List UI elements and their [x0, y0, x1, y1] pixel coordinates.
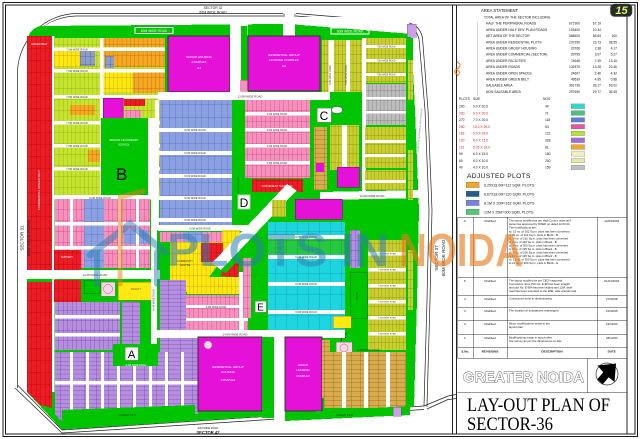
svg-text:9.0M WIDE ROAD: 9.0M WIDE ROAD	[295, 282, 317, 286]
svg-text:112: 112	[459, 145, 464, 149]
svg-text:162: 162	[459, 132, 465, 136]
svg-text:60M WIDE ROAD: 60M WIDE ROAD	[199, 11, 227, 15]
svg-text:PLOTS IN: PLOTS IN	[167, 224, 389, 276]
svg-text:5.27: 5.27	[611, 53, 618, 57]
svg-text:9.0M WIDE ROAD: 9.0M WIDE ROAD	[295, 310, 317, 314]
svg-text:NOS: NOS	[543, 97, 551, 101]
svg-text:9.0M WIDE ROAD: 9.0M WIDE ROAD	[184, 128, 206, 132]
svg-text:200: 200	[545, 159, 551, 163]
svg-text:24/12/94: 24/12/94	[606, 322, 618, 326]
svg-text:7.5M WIDE ROAD: 7.5M WIDE ROAD	[378, 301, 397, 304]
svg-text:DATE: DATE	[608, 350, 616, 354]
svg-text:60M WIDE ROAD: 60M WIDE ROAD	[141, 29, 168, 33]
svg-text:REVISIONS: REVISIONS	[482, 350, 499, 354]
svg-text:13.16: 13.16	[609, 59, 617, 63]
svg-text:10.0 X 25.0: 10.0 X 25.0	[473, 125, 490, 129]
svg-text:22.46: 22.46	[609, 65, 617, 69]
svg-text:40: 40	[545, 105, 549, 109]
svg-text:12M X 25M=300 SQM. PLOTS: 12M X 25M=300 SQM. PLOTS	[484, 211, 534, 215]
svg-text:Modified: Modified	[484, 297, 496, 301]
svg-text:38.55: 38.55	[609, 40, 617, 44]
svg-text:GREEN BELT: GREEN BELT	[336, 413, 354, 417]
svg-text:103400: 103400	[569, 28, 580, 32]
svg-text:AREA UNDER ROADS: AREA UNDER ROADS	[486, 65, 521, 69]
svg-text:SECTOR 31: SECTOR 31	[20, 225, 25, 251]
svg-text:DESCRIPTION: DESCRIPTION	[541, 350, 563, 354]
svg-text:9.0M WIDE ROAD: 9.0M WIDE ROAD	[267, 113, 288, 116]
svg-text:AREA UNDER FACILITIES: AREA UNDER FACILITIES	[486, 59, 527, 63]
svg-text:60M WIDE ROAD: 60M WIDE ROAD	[26, 219, 31, 256]
svg-text:Modified: Modified	[484, 309, 496, 313]
svg-text:9.0M WIDE ROAD: 9.0M WIDE ROAD	[267, 162, 288, 165]
svg-text:01/04/2003: 01/04/2003	[604, 279, 619, 283]
svg-text:9.0M WIDE ROAD: 9.0M WIDE ROAD	[126, 364, 147, 367]
svg-text:NET AREA OF THE SECTOR: NET AREA OF THE SECTOR	[486, 34, 530, 38]
svg-text:49530: 49530	[571, 78, 580, 82]
svg-text:GREEN BELT: GREEN BELT	[119, 413, 137, 417]
svg-text:GREEN BELT: GREEN BELT	[31, 42, 48, 46]
svg-text:SCHOOL: SCHOOL	[118, 143, 130, 147]
svg-text:9.0M WIDE ROAD: 9.0M WIDE ROAD	[184, 174, 206, 178]
svg-text:28/10/94: 28/10/94	[606, 336, 618, 340]
svg-text:3.07: 3.07	[595, 53, 602, 57]
svg-text:2.46: 2.46	[595, 71, 602, 75]
svg-text:G2: G2	[282, 64, 286, 68]
svg-text:Modified: Modified	[484, 219, 496, 223]
svg-text:LAY-OUT PLAN OF: LAY-OUT PLAN OF	[467, 395, 610, 416]
svg-text:9.0M WIDE ROAD: 9.0M WIDE ROAD	[184, 218, 206, 222]
svg-text:HOUSING COMPLEX: HOUSING COMPLEX	[269, 58, 299, 62]
svg-text:ADJUSTED PLOTS: ADJUSTED PLOTS	[467, 173, 531, 180]
svg-text:AREA UNDER COMMERCIAL (SECTOR): AREA UNDER COMMERCIAL (SECTOR)	[486, 53, 547, 57]
svg-text:road has been extended to the: road has been extended to the 18M. wide …	[509, 289, 577, 293]
svg-text:12.0M WIDE ROAD: 12.0M WIDE ROAD	[238, 95, 263, 99]
svg-text:6.25X18.0M=112 SQM. PLOTS: 6.25X18.0M=112 SQM. PLOTS	[484, 184, 535, 188]
svg-text:40: 40	[459, 166, 463, 170]
svg-text:2.: 2.	[464, 322, 467, 326]
svg-text:100: 100	[611, 34, 617, 38]
svg-text:568400: 568400	[569, 34, 580, 38]
svg-text:27/02/98: 27/02/98	[606, 297, 618, 301]
svg-text:671900: 671900	[569, 22, 580, 26]
svg-text:81: 81	[545, 145, 549, 149]
svg-text:Modified: Modified	[484, 279, 496, 283]
svg-text:GREATER NOIDA: GREATER NOIDA	[463, 370, 585, 386]
svg-text:15: 15	[615, 5, 628, 17]
svg-text:AREA UNDER GREEN BELT: AREA UNDER GREEN BELT	[486, 78, 529, 82]
svg-text:A: A	[128, 349, 136, 361]
svg-text:60: 60	[459, 159, 463, 163]
svg-text:120: 120	[459, 139, 465, 143]
svg-text:D: D	[240, 196, 249, 210]
svg-text:74646: 74646	[571, 59, 580, 63]
svg-text:AREA STATEMENT: AREA STATEMENT	[481, 8, 519, 13]
svg-text:0.86: 0.86	[611, 78, 618, 82]
svg-text:FACILITY: FACILITY	[131, 288, 142, 291]
svg-text:site survey as per the dimensi: site survey as per the dimensions on sit…	[509, 339, 562, 343]
svg-text:23766: 23766	[571, 47, 580, 51]
svg-text:GROUP: GROUP	[298, 363, 308, 367]
svg-text:7.5M WIDE ROAD: 7.5M WIDE ROAD	[66, 95, 88, 99]
svg-text:6.: 6.	[464, 219, 467, 223]
svg-text:328: 328	[545, 139, 551, 143]
svg-text:C: C	[320, 109, 329, 123]
svg-text:12.0M WIDE ROAD: 12.0M WIDE ROAD	[360, 194, 385, 198]
svg-text:NOIDA: NOIDA	[399, 224, 523, 276]
svg-text:8.1M X 20M=162 SQM. PLOTS: 8.1M X 20M=162 SQM. PLOTS	[484, 202, 535, 206]
svg-text:Modified: Modified	[484, 336, 496, 340]
svg-text:PLOTS: PLOTS	[459, 97, 471, 101]
svg-text:7.5M WIDE ROAD: 7.5M WIDE ROAD	[376, 74, 395, 77]
svg-text:6.67X18.0M=120 SQM. PLOTS: 6.67X18.0M=120 SQM. PLOTS	[484, 193, 535, 197]
svg-text:12/03/2004: 12/03/2004	[604, 219, 619, 223]
svg-text:S.No.: S.No.	[461, 350, 469, 354]
svg-text:180: 180	[545, 152, 551, 156]
svg-text:71: 71	[545, 111, 549, 115]
svg-text:9.0 X 18.0: 9.0 X 18.0	[473, 132, 488, 136]
svg-text:24607: 24607	[571, 71, 580, 75]
svg-text:7.5M WIDE ROAD: 7.5M WIDE ROAD	[376, 46, 395, 49]
svg-text:7.5M WIDE ROAD: 7.5M WIDE ROAD	[66, 48, 88, 52]
svg-text:7.0 X 20.0: 7.0 X 20.0	[473, 118, 488, 122]
svg-text:9.0 X 20.0: 9.0 X 20.0	[473, 105, 488, 109]
svg-text:5.: 5.	[464, 279, 467, 283]
svg-text:12.0M ROAD: 12.0M ROAD	[236, 177, 240, 194]
svg-text:9.0 X 20.0: 9.0 X 20.0	[473, 111, 488, 115]
svg-text:391739: 391739	[569, 84, 580, 88]
svg-text:90: 90	[459, 152, 463, 156]
svg-text:24.0M WIDE ROAD: 24.0M WIDE ROAD	[223, 333, 248, 337]
svg-text:HOUSING: HOUSING	[221, 370, 236, 374]
svg-text:237299: 237299	[569, 40, 580, 44]
svg-text:9.0M WIDE ROAD: 9.0M WIDE ROAD	[267, 129, 288, 132]
svg-text:COMPLEX: COMPLEX	[221, 378, 236, 382]
svg-text:250: 250	[459, 125, 465, 129]
svg-text:7.5M WIDE ROAD: 7.5M WIDE ROAD	[66, 167, 88, 171]
svg-text:270: 270	[459, 118, 465, 122]
svg-text:GROUP HOUSING: GROUP HOUSING	[186, 55, 212, 59]
svg-text:2.38: 2.38	[595, 47, 602, 51]
svg-text:SIZE: SIZE	[473, 97, 481, 101]
svg-text:4.17: 4.17	[611, 47, 618, 51]
svg-text:63.02: 63.02	[609, 84, 617, 88]
svg-text:Modified: Modified	[484, 322, 496, 326]
svg-text:7.49: 7.49	[595, 59, 602, 63]
svg-text:3.: 3.	[464, 309, 467, 313]
svg-text:10.34: 10.34	[593, 28, 601, 32]
svg-text:13.28: 13.28	[593, 65, 601, 69]
svg-text:9.0M WIDE ROAD: 9.0M WIDE ROAD	[206, 306, 227, 309]
svg-text:TOTAL AREA OF THE SECTOR INCLU: TOTAL AREA OF THE SECTOR INCLUDING	[484, 16, 551, 20]
svg-text:56.84: 56.84	[593, 34, 601, 38]
svg-text:4.32: 4.32	[611, 71, 618, 75]
svg-text:Corrections done in dimensioni: Corrections done in dimensioning	[509, 297, 552, 301]
svg-text:HALF THE PERIPHERAL ROADS: HALF THE PERIPHERAL ROADS	[486, 22, 537, 26]
svg-text:6.0 X 10.0: 6.0 X 10.0	[473, 159, 488, 163]
svg-text:36.49: 36.49	[609, 90, 617, 94]
svg-text:SECTOR 42: SECTOR 42	[196, 430, 220, 435]
svg-text:7.5M WIDE ROAD: 7.5M WIDE ROAD	[378, 317, 397, 320]
svg-text:G1: G1	[197, 66, 201, 70]
svg-text:7.5M WIDE ROAD: 7.5M WIDE ROAD	[66, 144, 88, 148]
svg-text:B: B	[116, 165, 127, 184]
svg-text:54: 54	[545, 125, 549, 129]
svg-text:COMMERCIAL GREEN BELT: COMMERCIAL GREEN BELT	[37, 170, 41, 210]
svg-text:NON SALEABLE AREA: NON SALEABLE AREA	[486, 90, 522, 94]
svg-text:SENIOR SECONDARY: SENIOR SECONDARY	[109, 138, 138, 142]
svg-text:SALEABLE AREA: SALEABLE AREA	[486, 84, 513, 88]
svg-text:297690: 297690	[569, 90, 580, 94]
svg-text:SECTOR-36: SECTOR-36	[467, 414, 553, 435]
svg-text:SECTOR 32: SECTOR 32	[204, 6, 223, 10]
svg-text:9.0M WIDE ROAD: 9.0M WIDE ROAD	[329, 65, 332, 85]
svg-text:8.0 X 15.0: 8.0 X 15.0	[473, 139, 488, 143]
svg-text:29.77: 29.77	[593, 90, 601, 94]
svg-text:7.5M WIDE ROAD: 7.5M WIDE ROAD	[378, 333, 397, 336]
svg-text:AREA UNDER OPEN SPACES: AREA UNDER OPEN SPACES	[486, 71, 533, 75]
svg-text:layout plan: layout plan	[509, 325, 523, 329]
svg-text:9.0M WIDE ROAD: 9.0M WIDE ROAD	[184, 196, 206, 200]
svg-text:RESIDENTIAL GROUP: RESIDENTIAL GROUP	[268, 53, 299, 57]
svg-text:39.17: 39.17	[593, 84, 601, 88]
svg-text:4.: 4.	[464, 297, 467, 301]
svg-text:4.95: 4.95	[595, 78, 602, 82]
svg-text:AREA UNDER HALF DEV. PLAN ROAD: AREA UNDER HALF DEV. PLAN ROADS	[486, 28, 548, 32]
svg-text:200: 200	[459, 105, 465, 109]
svg-text:7.5M WIDE ROAD: 7.5M WIDE ROAD	[378, 285, 397, 288]
svg-text:RESIDENTIAL GROUP: RESIDENTIAL GROUP	[212, 365, 243, 369]
svg-text:23.73: 23.73	[593, 40, 601, 44]
svg-text:HOUSING: HOUSING	[296, 368, 309, 372]
svg-text:The location of substations re: The location of substations rearranged	[509, 309, 559, 313]
svg-text:PARK: PARK	[355, 292, 359, 299]
svg-text:COMPLEX: COMPLEX	[296, 374, 310, 378]
svg-text:118: 118	[545, 118, 550, 122]
svg-text:1.: 1.	[464, 336, 467, 340]
svg-text:9.0M WIDE ROAD: 9.0M WIDE ROAD	[267, 145, 288, 148]
svg-text:132570: 132570	[569, 65, 580, 69]
svg-text:E: E	[257, 303, 264, 314]
svg-text:NURSERY: NURSERY	[61, 256, 73, 259]
svg-text:AREA UNDER RESIDENTIAL PLOTS: AREA UNDER RESIDENTIAL PLOTS	[486, 40, 542, 44]
svg-text:7.5M WIDE ROAD: 7.5M WIDE ROAD	[66, 121, 88, 125]
svg-text:9.0M WIDE ROAD: 9.0M WIDE ROAD	[152, 289, 156, 311]
svg-text:7.5M WIDE ROAD: 7.5M WIDE ROAD	[66, 69, 88, 73]
svg-text:121: 121	[545, 132, 551, 136]
svg-text:7.5M WIDE ROAD: 7.5M WIDE ROAD	[376, 60, 395, 63]
svg-text:9.0M WIDE ROAD: 9.0M WIDE ROAD	[345, 65, 348, 85]
svg-text:COMPLEX: COMPLEX	[192, 60, 207, 64]
svg-text:60M WIDE ROAD: 60M WIDE ROAD	[337, 30, 364, 34]
svg-text:4.0 X 10.0: 4.0 X 10.0	[473, 166, 488, 170]
svg-text:12.0M WIDE ROAD: 12.0M WIDE ROAD	[357, 348, 380, 352]
svg-text:67.19: 67.19	[593, 22, 601, 26]
svg-text:AREA UNDER GROUP HOUSING: AREA UNDER GROUP HOUSING	[486, 47, 537, 51]
svg-text:9.0M WIDE ROAD: 9.0M WIDE ROAD	[184, 151, 206, 155]
svg-text:6.25 X 18.0: 6.25 X 18.0	[473, 145, 490, 149]
svg-text:29795: 29795	[571, 53, 580, 57]
svg-text:6.0 X 15.0: 6.0 X 15.0	[473, 152, 488, 156]
svg-text:31/03/95: 31/03/95	[606, 309, 618, 313]
svg-text:159: 159	[545, 166, 551, 170]
svg-text:200: 200	[459, 111, 465, 115]
